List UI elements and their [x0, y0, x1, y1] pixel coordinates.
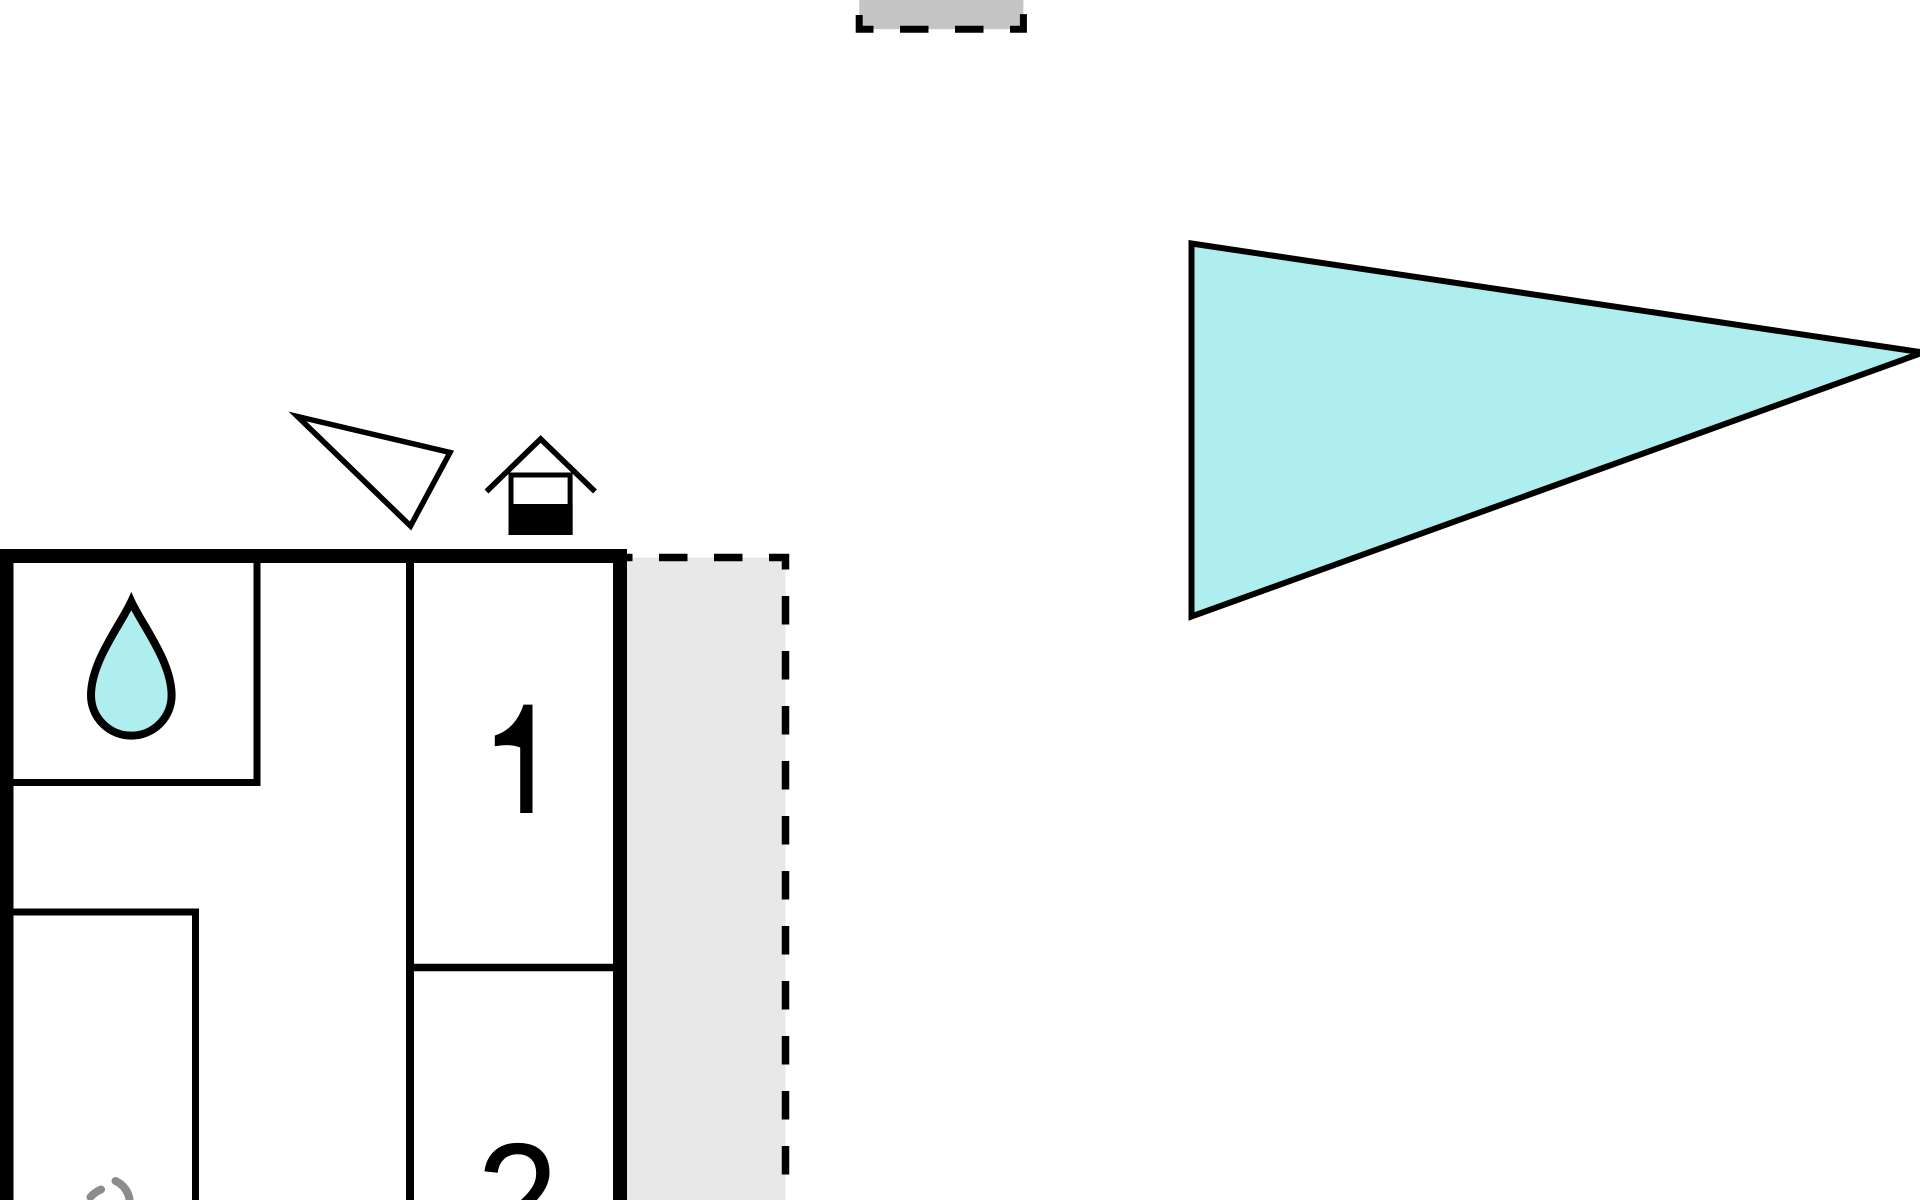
svg-text:2: 2: [477, 1111, 559, 1200]
